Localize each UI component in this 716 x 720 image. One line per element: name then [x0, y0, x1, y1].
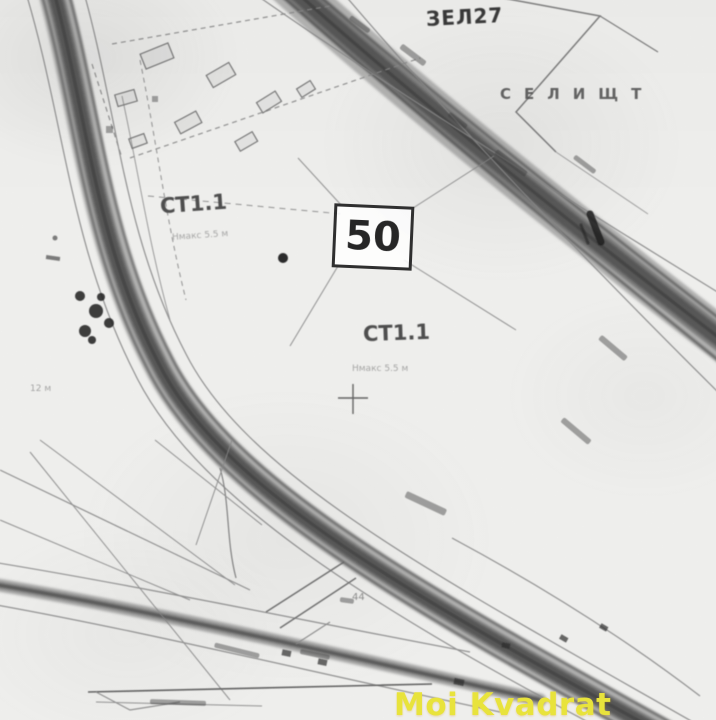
label-zone-a-code: СТ1.1 — [159, 190, 227, 219]
map-drawing — [0, 0, 716, 720]
label-parcel-44: 44 — [352, 592, 365, 603]
label-zone-b-height: Нмакс 5.5 м — [352, 364, 408, 374]
label-zone-b-code: СТ1.1 — [363, 320, 431, 346]
label-zel27: ЗЕЛ27 — [425, 3, 503, 31]
watermark-text: Moi Kvadrat — [394, 687, 611, 720]
label-road-width: 12 м — [30, 384, 51, 394]
scan-noise-overlay — [0, 0, 716, 720]
label-selishte: СЕЛИЩТ — [500, 85, 654, 103]
plot-number: 50 — [344, 216, 401, 258]
map-canvas: ЗЕЛ27 СЕЛИЩТ СТ1.1 Нмакс 5.5 м СТ1.1 Нма… — [0, 0, 716, 720]
plot-number-box: 50 — [332, 203, 415, 270]
